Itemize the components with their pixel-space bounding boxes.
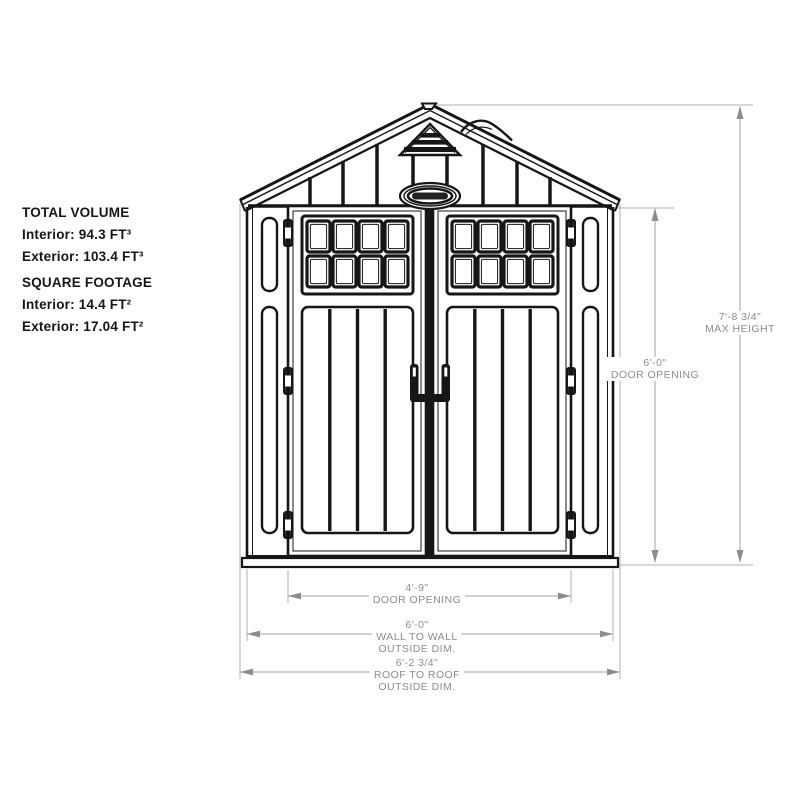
side-slot-window (262, 307, 277, 533)
shed-dimension-diagram: TOTAL VOLUME Interior: 94.3 FT³ Exterior… (0, 0, 800, 800)
window-pane (452, 256, 475, 287)
arrow-right-icon (600, 631, 613, 638)
window-pane (478, 221, 501, 252)
door-opening-width-label: 4'-9" DOOR OPENING (369, 582, 465, 606)
max-height-value: 7'-8 3/4" (705, 311, 775, 323)
door-opening-height-label: 6'-0" DOOR OPENING (607, 357, 703, 381)
window-pane (452, 221, 475, 252)
arrow-right-icon (607, 669, 620, 676)
brand-logo-badge (400, 183, 460, 209)
window-pane (333, 256, 356, 287)
side-slot-window (262, 218, 277, 291)
window-pane (530, 221, 553, 252)
arrow-left-icon (240, 669, 253, 676)
window-pane (307, 256, 330, 287)
hinge (567, 220, 575, 246)
roof-to-roof-subtext: OUTSIDE DIM. (374, 681, 460, 693)
roof-ridge-cap (422, 104, 436, 110)
door-height-text: DOOR OPENING (611, 369, 699, 381)
arrow-up-icon (737, 106, 744, 119)
door-height-value: 6'-0" (611, 357, 699, 369)
side-slot-window (583, 307, 598, 533)
roof-to-roof-value: 6'-2 3/4" (374, 657, 460, 669)
base-plate (242, 557, 618, 568)
right-wall (583, 207, 613, 557)
shed-front-elevation (240, 104, 620, 568)
window-pane (478, 256, 501, 287)
window-pane (504, 256, 527, 287)
left-door (288, 206, 426, 556)
window-pane (333, 221, 356, 252)
window-pane (504, 221, 527, 252)
hinge (284, 220, 292, 246)
roof-to-roof-label: 6'-2 3/4" ROOF TO ROOF OUTSIDE DIM. (370, 657, 464, 693)
window-pane (359, 221, 382, 252)
window-pane (385, 221, 408, 252)
arrow-down-icon (652, 550, 659, 563)
hinge (567, 368, 575, 394)
window-pane (385, 256, 408, 287)
door-astragal (426, 206, 434, 556)
arrow-up-icon (652, 208, 659, 221)
roof-to-roof-text: ROOF TO ROOF (374, 669, 460, 681)
right-door (433, 206, 571, 556)
arrow-down-icon (737, 550, 744, 563)
arrow-right-icon (558, 593, 571, 600)
wall-to-wall-label: 6'-0" WALL TO WALL OUTSIDE DIM. (372, 619, 461, 655)
wall-to-wall-subtext: OUTSIDE DIM. (376, 643, 457, 655)
max-height-label: 7'-8 3/4" MAX HEIGHT (701, 311, 779, 335)
window-pane (307, 221, 330, 252)
hinge (567, 512, 575, 538)
hinge (284, 368, 292, 394)
arrow-left-icon (288, 593, 301, 600)
left-wall (247, 207, 277, 557)
max-height-text: MAX HEIGHT (705, 323, 775, 335)
wall-to-wall-text: WALL TO WALL (376, 631, 457, 643)
window-pane (530, 256, 553, 287)
window-pane (359, 256, 382, 287)
side-slot-window (583, 218, 598, 291)
arrow-left-icon (247, 631, 260, 638)
hinge (284, 512, 292, 538)
door-width-value: 4'-9" (373, 582, 461, 594)
door-width-text: DOOR OPENING (373, 594, 461, 606)
wall-to-wall-value: 6'-0" (376, 619, 457, 631)
